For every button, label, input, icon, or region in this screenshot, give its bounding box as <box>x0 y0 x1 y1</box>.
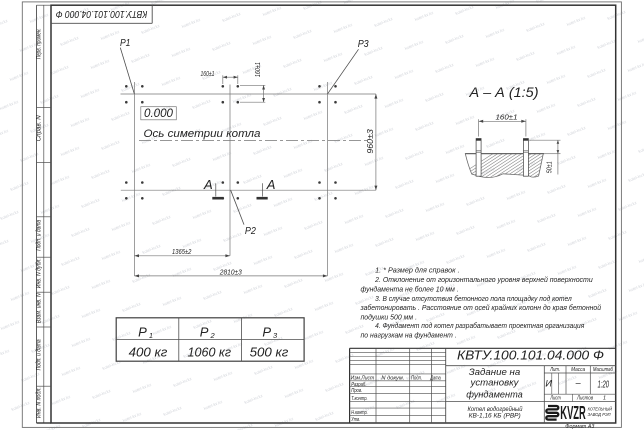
svg-text:Н.контр.: Н.контр. <box>351 410 368 416</box>
svg-text:kotel-kv.kz: kotel-kv.kz <box>252 34 272 46</box>
svg-text:kotel-kv.kz: kotel-kv.kz <box>618 200 638 212</box>
svg-text:kotel-kv.kz: kotel-kv.kz <box>344 213 364 225</box>
svg-text:kotel-kv.kz: kotel-kv.kz <box>81 307 101 319</box>
svg-text:kotel-kv.kz: kotel-kv.kz <box>121 81 141 93</box>
svg-text:kotel-kv.kz: kotel-kv.kz <box>384 97 404 109</box>
svg-text:–: – <box>575 378 582 388</box>
svg-text:kotel-kv.kz: kotel-kv.kz <box>51 394 71 406</box>
svg-text:kotel-kv.kz: kotel-kv.kz <box>394 68 414 80</box>
svg-text:kotel-kv.kz: kotel-kv.kz <box>416 340 436 352</box>
svg-text:kotel-kv.kz: kotel-kv.kz <box>162 295 182 307</box>
svg-text:kotel-kv.kz: kotel-kv.kz <box>445 143 465 155</box>
svg-text:kotel-kv.kz: kotel-kv.kz <box>567 235 587 247</box>
svg-text:kotel-kv.kz: kotel-kv.kz <box>374 126 394 138</box>
svg-text:1: 1 <box>603 396 606 402</box>
svg-text:kotel-kv.kz: kotel-kv.kz <box>61 255 81 267</box>
svg-text:500 кг: 500 кг <box>250 345 289 359</box>
svg-text:kotel-kv.kz: kotel-kv.kz <box>70 116 90 128</box>
svg-text:Справ. N: Справ. N <box>35 115 42 142</box>
svg-text:kotel-kv.kz: kotel-kv.kz <box>333 22 353 34</box>
svg-text:kotel-kv.kz: kotel-kv.kz <box>192 98 212 110</box>
svg-text:kotel-kv.kz: kotel-kv.kz <box>9 70 29 82</box>
svg-text:kotel-kv.kz: kotel-kv.kz <box>516 50 536 62</box>
svg-text:400 кг: 400 кг <box>129 345 168 359</box>
svg-text:kotel-kv.kz: kotel-kv.kz <box>253 144 273 156</box>
svg-text:160±1: 160±1 <box>201 69 215 78</box>
svg-text:kotel-kv.kz: kotel-kv.kz <box>344 103 364 115</box>
svg-text:kotel-kv.kz: kotel-kv.kz <box>273 86 293 98</box>
svg-text:Подп. и дата: Подп. и дата <box>35 339 42 370</box>
svg-text:kotel-kv.kz: kotel-kv.kz <box>0 348 10 360</box>
svg-text:kotel-kv.kz: kotel-kv.kz <box>181 17 201 29</box>
svg-text:kotel-kv.kz: kotel-kv.kz <box>141 23 161 35</box>
svg-text:P1: P1 <box>138 324 153 340</box>
svg-text:kotel-kv.kz: kotel-kv.kz <box>334 242 354 254</box>
svg-text:kotel-kv.kz: kotel-kv.kz <box>0 209 19 221</box>
svg-text:по нагрузкам на фундамент .: по нагрузкам на фундамент . <box>361 331 457 339</box>
svg-text:Пров.: Пров. <box>351 388 362 394</box>
svg-text:kotel-kv.kz: kotel-kv.kz <box>414 10 434 22</box>
svg-text:kotel-kv.kz: kotel-kv.kz <box>203 289 223 301</box>
svg-text:kotel-kv.kz: kotel-kv.kz <box>162 185 182 197</box>
svg-text:kotel-kv.kz: kotel-kv.kz <box>637 32 644 44</box>
svg-text:kotel-kv.kz: kotel-kv.kz <box>61 365 81 377</box>
svg-text:kotel-kv.kz: kotel-kv.kz <box>628 171 644 183</box>
svg-text:kotel-kv.kz: kotel-kv.kz <box>244 393 264 405</box>
svg-text:ЗАВОД РЭП: ЗАВОД РЭП <box>588 412 611 418</box>
svg-text:kotel-kv.kz: kotel-kv.kz <box>21 371 41 383</box>
svg-text:kotel-kv.kz: kotel-kv.kz <box>598 258 618 270</box>
svg-text:kotel-kv.kz: kotel-kv.kz <box>122 411 142 423</box>
svg-text:kotel-kv.kz: kotel-kv.kz <box>405 149 425 161</box>
svg-text:Подп.: Подп. <box>411 375 422 381</box>
svg-text:Изм.Лист: Изм.Лист <box>351 375 375 381</box>
svg-text:N докум.: N докум. <box>381 375 404 381</box>
svg-text:Задание на: Задание на <box>469 367 521 378</box>
svg-text:kotel-kv.kz: kotel-kv.kz <box>608 229 628 241</box>
svg-text:kotel-kv.kz: kotel-kv.kz <box>617 90 637 102</box>
svg-text:kotel-kv.kz: kotel-kv.kz <box>10 290 30 302</box>
svg-text:kotel-kv.kz: kotel-kv.kz <box>343 0 363 5</box>
svg-text:kotel-kv.kz: kotel-kv.kz <box>304 219 324 231</box>
svg-text:kotel-kv.kz: kotel-kv.kz <box>40 93 60 105</box>
svg-text:P2: P2 <box>245 226 256 237</box>
svg-text:kotel-kv.kz: kotel-kv.kz <box>588 287 608 299</box>
svg-text:kotel-kv.kz: kotel-kv.kz <box>323 51 343 63</box>
svg-text:kotel-kv.kz: kotel-kv.kz <box>475 56 495 68</box>
svg-text:kotel-kv.kz: kotel-kv.kz <box>435 172 455 184</box>
svg-text:kotel-kv.kz: kotel-kv.kz <box>496 218 516 230</box>
svg-text:kotel-kv.kz: kotel-kv.kz <box>10 180 30 192</box>
svg-text:KVZR: KVZR <box>560 403 586 423</box>
svg-text:kotel-kv.kz: kotel-kv.kz <box>212 150 232 162</box>
svg-text:kotel-kv.kz: kotel-kv.kz <box>273 196 293 208</box>
svg-text:Лист: Лист <box>549 396 561 402</box>
svg-text:kotel-kv.kz: kotel-kv.kz <box>558 374 578 386</box>
svg-text:А – А (1:5): А – А (1:5) <box>468 85 538 100</box>
svg-text:Дата: Дата <box>430 375 441 381</box>
svg-text:kotel-kv.kz: kotel-kv.kz <box>0 238 9 250</box>
svg-text:kotel-kv.kz: kotel-kv.kz <box>212 40 232 52</box>
svg-text:kotel-kv.kz: kotel-kv.kz <box>455 114 475 126</box>
svg-text:kotel-kv.kz: kotel-kv.kz <box>50 174 70 186</box>
svg-text:kotel-kv.kz: kotel-kv.kz <box>90 58 110 70</box>
svg-text:установку: установку <box>469 377 519 388</box>
svg-text:kotel-kv.kz: kotel-kv.kz <box>314 190 334 202</box>
svg-text:kotel-kv.kz: kotel-kv.kz <box>274 416 294 428</box>
svg-text:kotel-kv.kz: kotel-kv.kz <box>557 264 577 276</box>
svg-text:Утв.: Утв. <box>350 417 360 423</box>
svg-text:kotel-kv.kz: kotel-kv.kz <box>41 423 61 430</box>
svg-text:P3: P3 <box>358 39 369 50</box>
svg-text:забетонировать . Расстояние от: забетонировать . Расстояние от осей край… <box>360 304 602 312</box>
svg-text:kotel-kv.kz: kotel-kv.kz <box>91 278 111 290</box>
svg-text:Т.контр.: Т.контр. <box>351 396 368 402</box>
svg-text:kotel-kv.kz: kotel-kv.kz <box>325 381 345 393</box>
svg-text:kotel-kv.kz: kotel-kv.kz <box>415 230 435 242</box>
svg-text:kotel-kv.kz: kotel-kv.kz <box>536 102 556 114</box>
svg-text:50±1: 50±1 <box>544 161 553 173</box>
svg-text:kotel-kv.kz: kotel-kv.kz <box>527 241 547 253</box>
svg-text:kotel-kv.kz: kotel-kv.kz <box>404 39 424 51</box>
svg-text:kotel-kv.kz: kotel-kv.kz <box>0 18 8 30</box>
svg-text:kotel-kv.kz: kotel-kv.kz <box>374 16 394 28</box>
svg-text:kotel-kv.kz: kotel-kv.kz <box>233 202 253 214</box>
svg-text:kotel-kv.kz: kotel-kv.kz <box>557 154 577 166</box>
svg-text:kotel-kv.kz: kotel-kv.kz <box>243 173 263 185</box>
svg-text:kotel-kv.kz: kotel-kv.kz <box>172 156 192 168</box>
svg-text:kotel-kv.kz: kotel-kv.kz <box>546 73 566 85</box>
svg-text:А: А <box>266 177 276 192</box>
svg-text:kotel-kv.kz: kotel-kv.kz <box>0 99 19 111</box>
svg-text:kotel-kv.kz: kotel-kv.kz <box>486 137 506 149</box>
svg-text:kotel-kv.kz: kotel-kv.kz <box>222 11 242 23</box>
svg-text:kotel-kv.kz: kotel-kv.kz <box>121 191 141 203</box>
svg-text:P1: P1 <box>120 38 131 49</box>
svg-text:kotel-kv.kz: kotel-kv.kz <box>294 248 314 260</box>
svg-text:kotel-kv.kz: kotel-kv.kz <box>415 120 435 132</box>
svg-text:kotel-kv.kz: kotel-kv.kz <box>587 67 607 79</box>
svg-text:kotel-kv.kz: kotel-kv.kz <box>638 252 644 264</box>
svg-text:kotel-kv.kz: kotel-kv.kz <box>71 226 91 238</box>
svg-text:kotel-kv.kz: kotel-kv.kz <box>435 62 455 74</box>
svg-text:kotel-kv.kz: kotel-kv.kz <box>566 15 586 27</box>
svg-text:kotel-kv.kz: kotel-kv.kz <box>456 334 476 346</box>
svg-text:kotel-kv.kz: kotel-kv.kz <box>253 254 273 266</box>
svg-text:kotel-kv.kz: kotel-kv.kz <box>81 197 101 209</box>
svg-text:Инв. N дубл.: Инв. N дубл. <box>35 258 42 288</box>
svg-text:3. В случае отсутствия бетонно: 3. В случае отсутствия бетонного пола пл… <box>375 295 572 303</box>
svg-text:kotel-kv.kz: kotel-kv.kz <box>627 61 644 73</box>
svg-text:P2: P2 <box>200 324 216 340</box>
svg-text:КВ-1,16 КБ (РВР): КВ-1,16 КБ (РВР) <box>469 414 521 420</box>
svg-text:kotel-kv.kz: kotel-kv.kz <box>283 57 303 69</box>
svg-text:kotel-kv.kz: kotel-kv.kz <box>628 281 644 293</box>
svg-text:kotel-kv.kz: kotel-kv.kz <box>92 388 112 400</box>
svg-text:kotel-kv.kz: kotel-kv.kz <box>608 339 628 351</box>
svg-text:0.000: 0.000 <box>144 108 174 120</box>
svg-text:kotel-kv.kz: kotel-kv.kz <box>526 131 546 143</box>
svg-text:kotel-kv.kz: kotel-kv.kz <box>71 336 91 348</box>
svg-text:1. * Размер для справок .: 1. * Размер для справок . <box>375 266 460 274</box>
svg-text:kotel-kv.kz: kotel-kv.kz <box>324 271 344 283</box>
svg-text:kotel-kv.kz: kotel-kv.kz <box>537 212 557 224</box>
svg-text:kotel-kv.kz: kotel-kv.kz <box>506 189 526 201</box>
svg-text:1365±2: 1365±2 <box>172 247 191 256</box>
svg-text:kotel-kv.kz: kotel-kv.kz <box>425 91 445 103</box>
svg-text:kotel-kv.kz: kotel-kv.kz <box>101 139 121 151</box>
svg-text:kotel-kv.kz: kotel-kv.kz <box>111 110 131 122</box>
svg-text:1:20: 1:20 <box>598 379 610 390</box>
svg-text:kotel-kv.kz: kotel-kv.kz <box>152 324 172 336</box>
svg-text:kotel-kv.kz: kotel-kv.kz <box>315 410 335 422</box>
svg-text:kotel-kv.kz: kotel-kv.kz <box>324 161 344 173</box>
svg-text:kotel-kv.kz: kotel-kv.kz <box>597 38 617 50</box>
svg-text:kotel-kv.kz: kotel-kv.kz <box>395 178 415 190</box>
svg-text:Ось симетрии котла: Ось симетрии котла <box>144 128 261 140</box>
svg-text:kotel-kv.kz: kotel-kv.kz <box>0 128 9 140</box>
svg-text:kotel-kv.kz: kotel-kv.kz <box>131 162 151 174</box>
svg-text:kotel-kv.kz: kotel-kv.kz <box>526 21 546 33</box>
svg-text:kotel-kv.kz: kotel-kv.kz <box>426 311 446 323</box>
svg-text:4. Фундамент под котел разраба: 4. Фундамент под котел разрабатывает про… <box>375 322 584 330</box>
svg-text:Формат А3: Формат А3 <box>565 424 595 430</box>
svg-text:kotel-kv.kz: kotel-kv.kz <box>556 44 576 56</box>
svg-text:kotel-kv.kz: kotel-kv.kz <box>597 148 617 160</box>
svg-text:kotel-kv.kz: kotel-kv.kz <box>223 231 243 243</box>
svg-text:kotel-kv.kz: kotel-kv.kz <box>173 376 193 388</box>
svg-text:И: И <box>545 379 552 389</box>
svg-text:kotel-kv.kz: kotel-kv.kz <box>334 132 354 144</box>
svg-text:kotel-kv.kz: kotel-kv.kz <box>122 301 142 313</box>
svg-text:kotel-kv.kz: kotel-kv.kz <box>192 208 212 220</box>
svg-text:Подп. и дата: Подп. и дата <box>35 219 42 250</box>
svg-text:kotel-kv.kz: kotel-kv.kz <box>171 46 191 58</box>
svg-text:kotel-kv.kz: kotel-kv.kz <box>274 306 294 318</box>
svg-text:kotel-kv.kz: kotel-kv.kz <box>0 0 18 1</box>
svg-text:kotel-kv.kz: kotel-kv.kz <box>364 155 384 167</box>
svg-text:Масштаб: Масштаб <box>593 367 614 373</box>
svg-text:kotel-kv.kz: kotel-kv.kz <box>100 29 120 41</box>
svg-text:kotel-kv.kz: kotel-kv.kz <box>131 52 151 64</box>
svg-text:Взам. инв. N: Взам. инв. N <box>35 293 42 323</box>
svg-text:Котел водогрейный: Котел водогрейный <box>468 406 524 413</box>
svg-text:kotel-kv.kz: kotel-kv.kz <box>638 142 644 154</box>
svg-text:kotel-kv.kz: kotel-kv.kz <box>112 330 132 342</box>
svg-text:kotel-kv.kz: kotel-kv.kz <box>446 363 466 375</box>
svg-text:фундамента: фундамента <box>466 390 523 401</box>
svg-text:kotel-kv.kz: kotel-kv.kz <box>577 96 597 108</box>
svg-text:kotel-kv.kz: kotel-kv.kz <box>40 203 60 215</box>
svg-text:Разраб.: Разраб. <box>351 382 366 388</box>
svg-text:Лит.: Лит. <box>549 367 560 373</box>
svg-text:kotel-kv.kz: kotel-kv.kz <box>161 75 181 87</box>
svg-text:kotel-kv.kz: kotel-kv.kz <box>466 195 486 207</box>
svg-text:kotel-kv.kz: kotel-kv.kz <box>80 87 100 99</box>
svg-text:kotel-kv.kz: kotel-kv.kz <box>375 236 395 248</box>
svg-text:Масса: Масса <box>571 367 585 373</box>
svg-text:kotel-kv.kz: kotel-kv.kz <box>607 119 627 131</box>
svg-text:КОТЕЛЬНЫЙ: КОТЕЛЬНЫЙ <box>588 404 613 412</box>
svg-text:kotel-kv.kz: kotel-kv.kz <box>425 201 445 213</box>
svg-text:kotel-kv.kz: kotel-kv.kz <box>354 74 374 86</box>
svg-text:2810±3: 2810±3 <box>219 268 242 277</box>
svg-text:kotel-kv.kz: kotel-kv.kz <box>456 224 476 236</box>
svg-text:kotel-kv.kz: kotel-kv.kz <box>314 300 334 312</box>
svg-text:1060 кг: 1060 кг <box>188 345 232 359</box>
svg-text:160±1: 160±1 <box>253 62 262 77</box>
svg-text:kotel-kv.kz: kotel-kv.kz <box>101 249 121 261</box>
svg-text:фундамента не более 10 мм .: фундамента не более 10 мм . <box>361 286 459 294</box>
svg-text:Инв. N подл.: Инв. N подл. <box>35 387 42 418</box>
svg-text:kotel-kv.kz: kotel-kv.kz <box>577 206 597 218</box>
svg-text:kotel-kv.kz: kotel-kv.kz <box>485 27 505 39</box>
svg-text:kotel-kv.kz: kotel-kv.kz <box>60 35 80 47</box>
svg-text:КВТУ.100.101.04.000 Ф: КВТУ.100.101.04.000 Ф <box>56 8 148 19</box>
svg-text:kotel-kv.kz: kotel-kv.kz <box>607 9 627 21</box>
svg-text:960±3: 960±3 <box>366 129 375 154</box>
svg-text:kotel-kv.kz: kotel-kv.kz <box>0 319 20 331</box>
svg-text:kotel-kv.kz: kotel-kv.kz <box>152 214 172 226</box>
svg-text:kotel-kv.kz: kotel-kv.kz <box>60 145 80 157</box>
svg-text:kotel-kv.kz: kotel-kv.kz <box>283 167 303 179</box>
svg-text:kotel-kv.kz: kotel-kv.kz <box>486 247 506 259</box>
svg-text:kotel-kv.kz: kotel-kv.kz <box>51 284 71 296</box>
svg-text:kotel-kv.kz: kotel-kv.kz <box>111 220 131 232</box>
svg-text:kotel-kv.kz: kotel-kv.kz <box>547 183 567 195</box>
svg-text:подушки 500 мм .: подушки 500 мм . <box>361 313 418 321</box>
svg-text:Листов: Листов <box>576 396 593 402</box>
svg-text:kotel-kv.kz: kotel-kv.kz <box>263 115 283 127</box>
svg-text:kotel-kv.kz: kotel-kv.kz <box>293 138 313 150</box>
svg-text:kotel-kv.kz: kotel-kv.kz <box>163 405 183 417</box>
svg-text:kotel-kv.kz: kotel-kv.kz <box>284 387 304 399</box>
svg-text:kotel-kv.kz: kotel-kv.kz <box>254 364 274 376</box>
svg-text:КВТУ.100.101.04.000 Ф: КВТУ.100.101.04.000 Ф <box>457 348 604 363</box>
svg-text:kotel-kv.kz: kotel-kv.kz <box>567 125 587 137</box>
svg-text:Перв. примен.: Перв. примен. <box>35 28 42 59</box>
svg-text:kotel-kv.kz: kotel-kv.kz <box>142 243 162 255</box>
svg-text:kotel-kv.kz: kotel-kv.kz <box>132 382 152 394</box>
svg-text:kotel-kv.kz: kotel-kv.kz <box>304 329 324 341</box>
svg-text:kotel-kv.kz: kotel-kv.kz <box>587 177 607 189</box>
svg-text:А: А <box>203 177 213 192</box>
svg-text:kotel-kv.kz: kotel-kv.kz <box>50 64 70 76</box>
svg-text:2. Отклонение от горизонтально: 2. Отклонение от горизонтального уровня … <box>374 276 593 284</box>
svg-text:160±1: 160±1 <box>496 112 518 121</box>
svg-text:kotel-kv.kz: kotel-kv.kz <box>335 352 355 364</box>
svg-text:P3: P3 <box>262 324 278 340</box>
svg-text:kotel-kv.kz: kotel-kv.kz <box>303 109 323 121</box>
svg-text:kotel-kv.kz: kotel-kv.kz <box>293 28 313 40</box>
svg-text:kotel-kv.kz: kotel-kv.kz <box>91 168 111 180</box>
svg-text:kotel-kv.kz: kotel-kv.kz <box>284 277 304 289</box>
svg-text:kotel-kv.kz: kotel-kv.kz <box>29 12 49 24</box>
svg-text:kotel-kv.kz: kotel-kv.kz <box>355 294 375 306</box>
svg-text:kotel-kv.kz: kotel-kv.kz <box>263 225 283 237</box>
svg-text:kotel-kv.kz: kotel-kv.kz <box>213 370 233 382</box>
svg-text:kotel-kv.kz: kotel-kv.kz <box>243 283 263 295</box>
svg-text:kotel-kv.kz: kotel-kv.kz <box>385 207 405 219</box>
svg-text:kotel-kv.kz: kotel-kv.kz <box>445 33 465 45</box>
svg-text:kotel-kv.kz: kotel-kv.kz <box>262 5 282 17</box>
svg-text:kotel-kv.kz: kotel-kv.kz <box>11 400 31 412</box>
svg-text:kotel-kv.kz: kotel-kv.kz <box>203 399 223 411</box>
svg-text:kotel-kv.kz: kotel-kv.kz <box>446 253 466 265</box>
